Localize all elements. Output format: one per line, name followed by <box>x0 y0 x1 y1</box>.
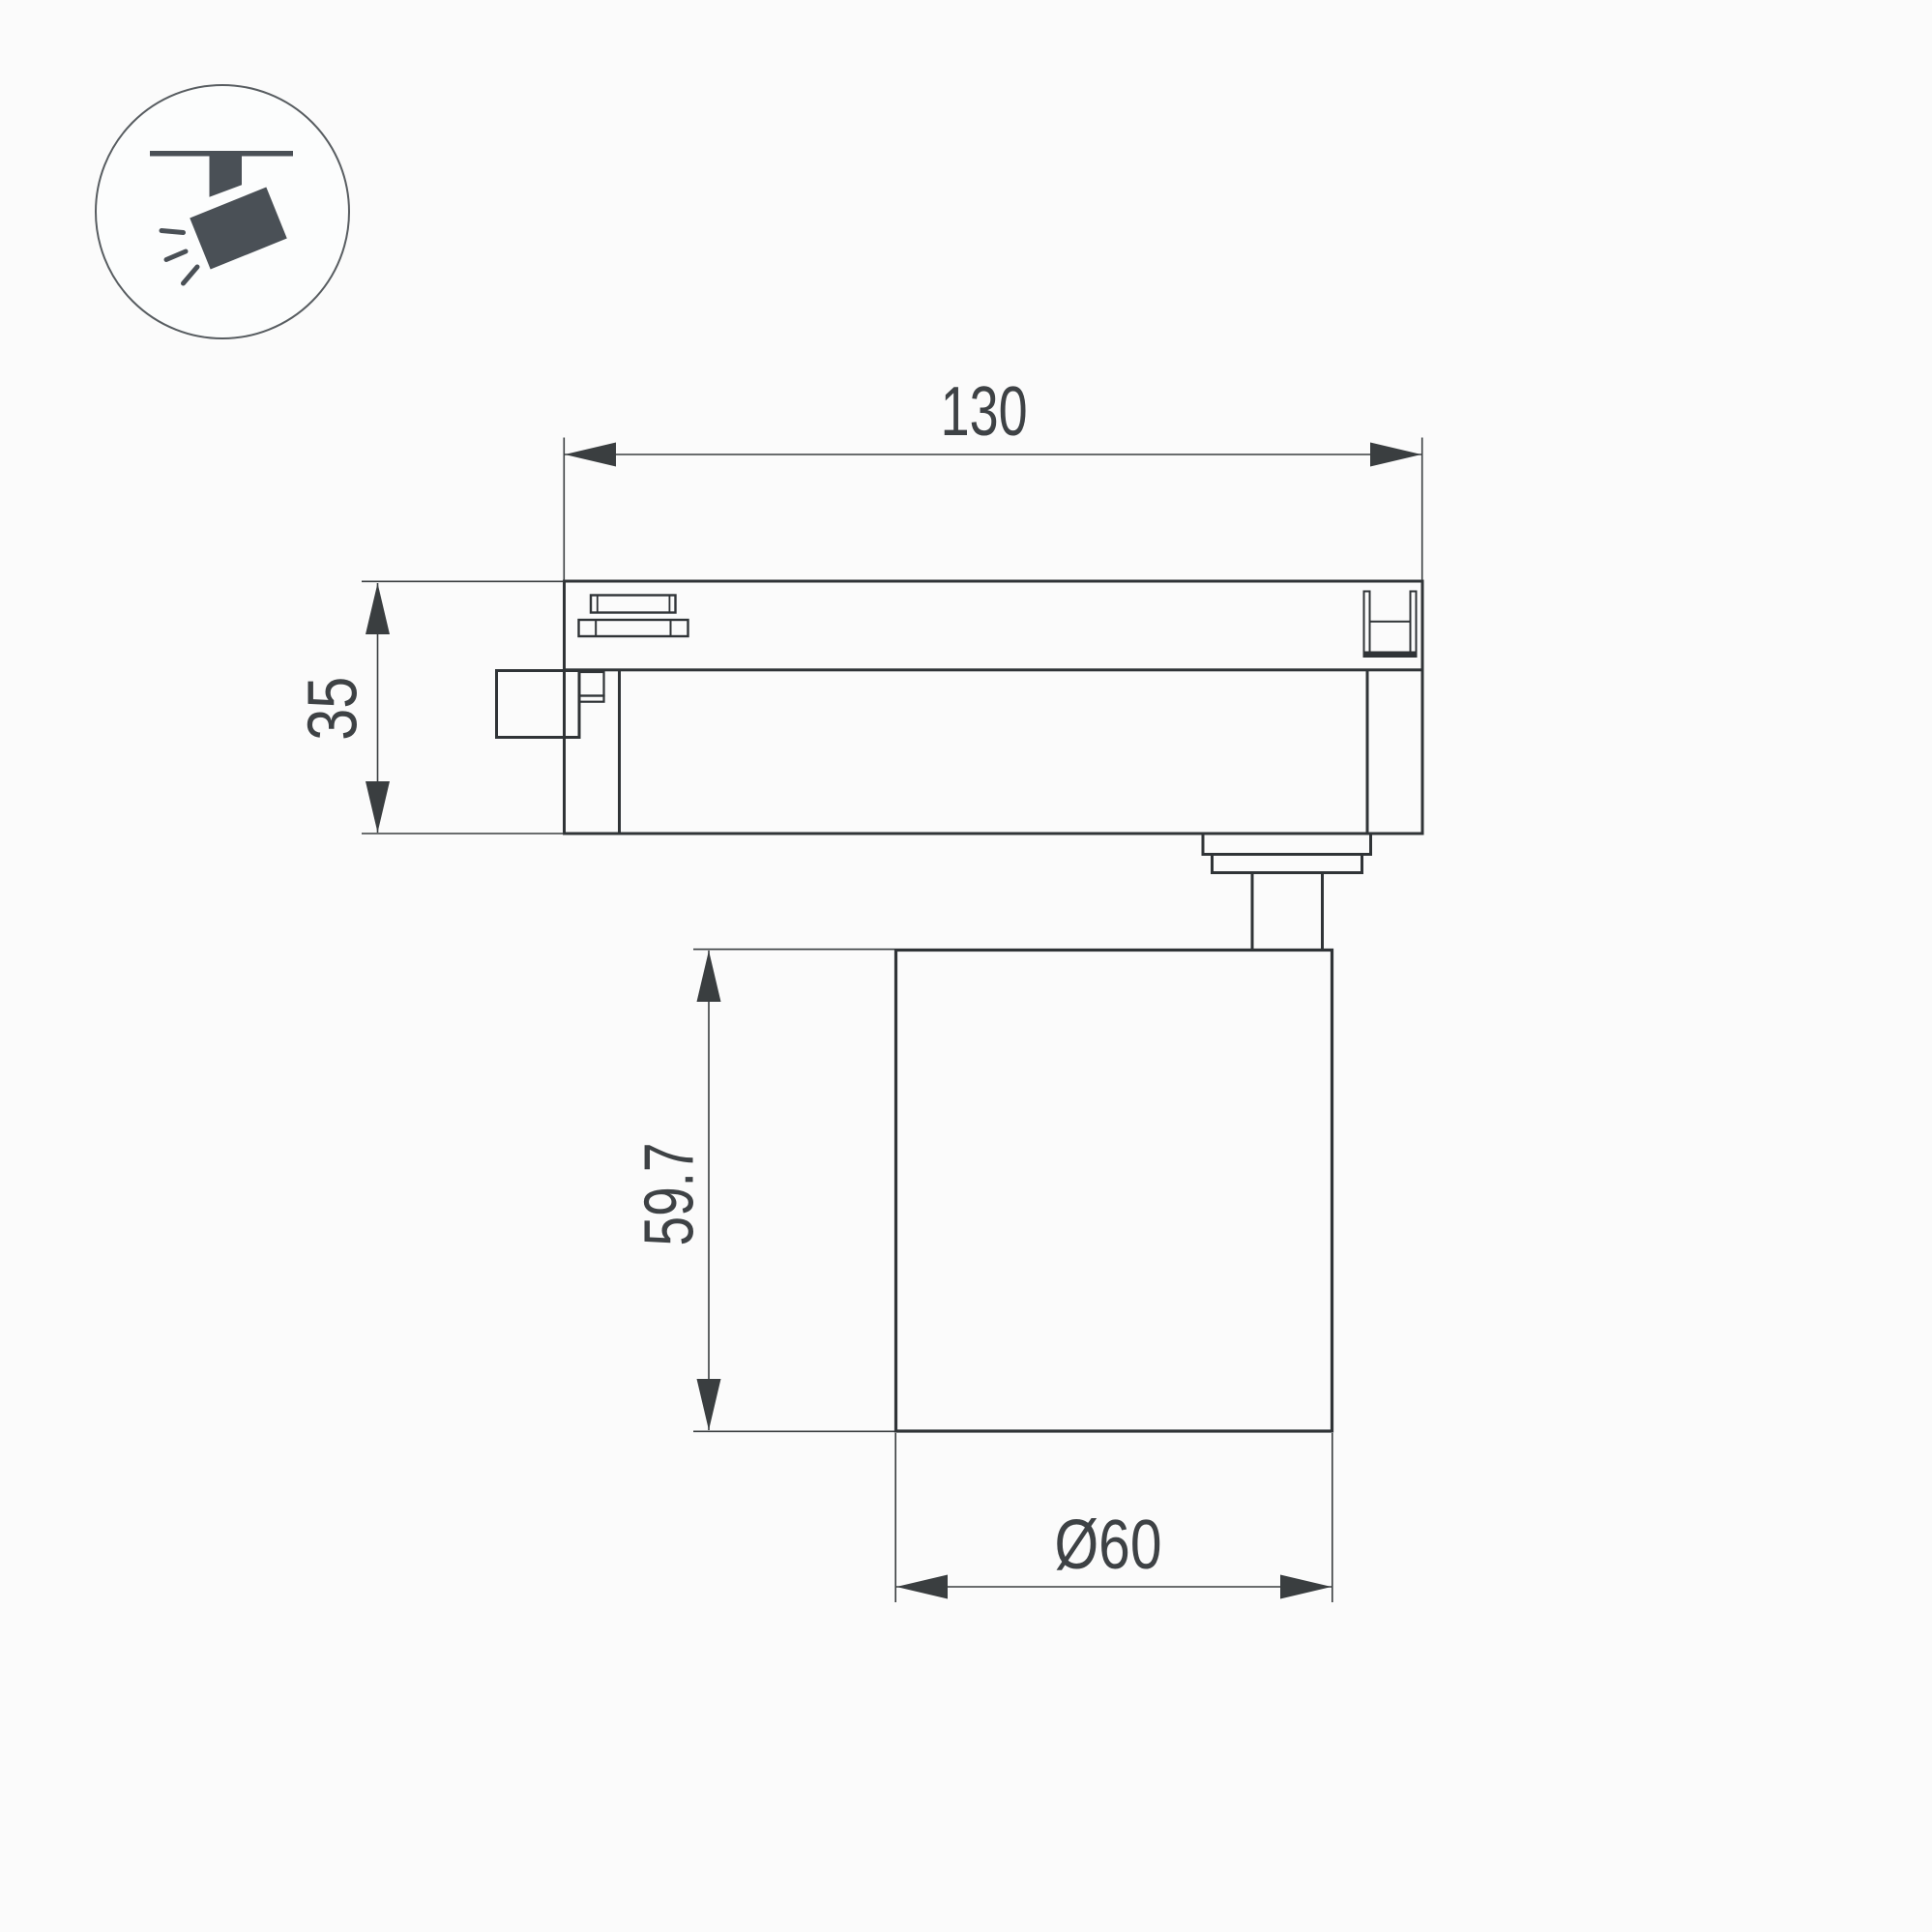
svg-text:Ø60: Ø60 <box>1055 1507 1162 1584</box>
svg-text:130: 130 <box>941 373 1028 451</box>
svg-text:35: 35 <box>295 677 372 741</box>
svg-text:59.7: 59.7 <box>631 1143 709 1246</box>
